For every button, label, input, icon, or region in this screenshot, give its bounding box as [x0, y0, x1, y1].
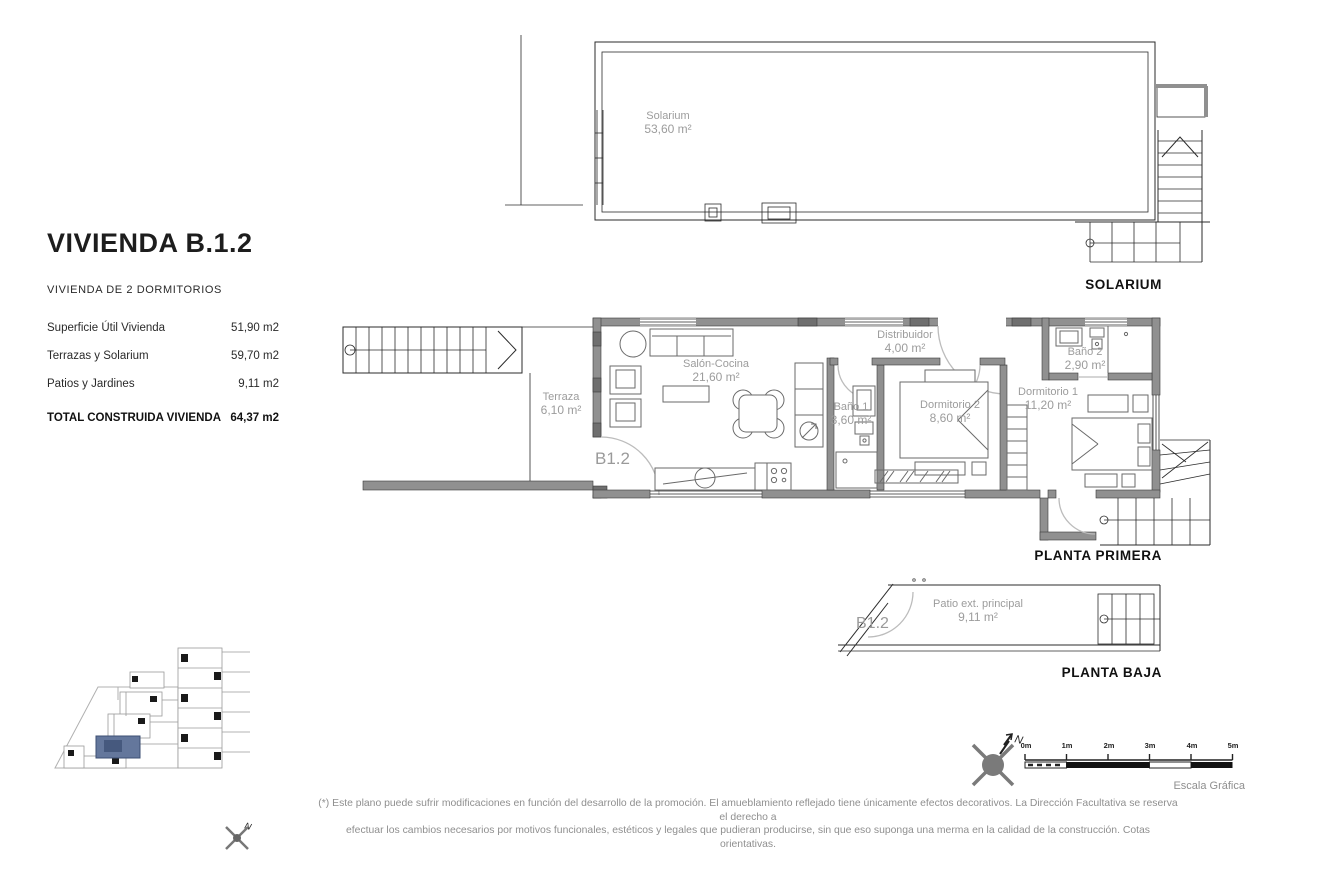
area-total-label: TOTAL CONSTRUIDA VIVIENDA	[47, 412, 221, 424]
room-label-dormitorio1: Dormitorio 1 11,20 m²	[1018, 386, 1078, 412]
area-row-value: 9,11 m2	[238, 378, 279, 390]
info-panel: VIVIENDA B.1.2 VIVIENDA DE 2 DORMITORIOS…	[47, 228, 279, 440]
shower	[836, 452, 877, 488]
room-label-patio: Patio ext. principal 9,11 m²	[933, 598, 1023, 624]
room-area: 8,60 m²	[920, 412, 980, 425]
armchair	[610, 399, 641, 427]
room-area: 53,60 m²	[644, 123, 691, 136]
dining-table	[733, 390, 784, 438]
sofa	[650, 329, 733, 356]
area-row-value: 51,90 m2	[231, 322, 279, 334]
room-area: 6,10 m²	[541, 404, 582, 417]
area-row: Patios y Jardines 9,11 m2	[47, 378, 279, 390]
area-row-label: Patios y Jardines	[47, 378, 135, 390]
window	[870, 491, 965, 497]
coffee-table	[663, 386, 709, 402]
floor-plan-sheet: VIVIENDA B.1.2 VIVIENDA DE 2 DORMITORIOS…	[0, 0, 1330, 873]
window	[1085, 318, 1127, 326]
solarium-room-label: Solarium 53,60 m²	[644, 110, 691, 136]
area-row-label: Terrazas y Solarium	[47, 350, 149, 362]
window	[650, 491, 762, 497]
pillow	[1138, 447, 1150, 466]
room-area: 2,90 m²	[1065, 359, 1106, 372]
closet	[1007, 405, 1027, 490]
site-key-plan: N	[45, 640, 275, 865]
disclaimer-line1: (*) Este plano puede sufrir modificacion…	[318, 797, 1178, 824]
solarium-stairs	[1075, 86, 1210, 262]
solarium-neighbor-lines	[505, 35, 583, 205]
dresser	[1088, 395, 1128, 412]
scale-tick: 2m	[1098, 741, 1120, 750]
room-label-bano2: Baño 2 2,90 m²	[1065, 346, 1106, 372]
bedroom1-furniture	[1072, 395, 1152, 487]
room-area: 4,00 m²	[877, 342, 933, 355]
toilet	[1090, 328, 1104, 337]
pillow	[925, 370, 975, 382]
patio-stairs	[1098, 594, 1160, 644]
round-table	[620, 331, 646, 357]
site-north-arrow-icon: N	[226, 820, 253, 849]
planta-primera-caption: PLANTA PRIMERA	[1000, 548, 1162, 563]
door-arc	[1059, 498, 1095, 534]
scale-tick: 5m	[1222, 741, 1244, 750]
scale-bar: 0m 1m 2m 3m 4m 5m	[1022, 741, 1242, 781]
room-label-terraza: Terraza 6,10 m²	[541, 391, 582, 417]
area-row: Terrazas y Solarium 59,70 m2	[47, 350, 279, 362]
page-title: VIVIENDA B.1.2	[47, 228, 279, 259]
pillow	[1138, 424, 1150, 443]
entry-stairs	[343, 327, 593, 373]
room-area: 11,20 m²	[1018, 399, 1078, 412]
room-label-bano1: Baño 1 3,60 m²	[831, 401, 872, 427]
kitchen-counter	[795, 363, 823, 447]
window	[845, 318, 903, 326]
area-row-value: 59,70 m2	[231, 350, 279, 362]
window	[640, 318, 696, 326]
scale-tick: 1m	[1056, 741, 1078, 750]
room-area: 21,60 m²	[683, 371, 749, 384]
window	[1153, 395, 1159, 450]
area-row-label: Superficie Útil Vivienda	[47, 322, 165, 334]
living-room-furniture	[610, 329, 823, 490]
stove	[755, 463, 791, 490]
unit-label-planta-primera: B1.2	[595, 449, 630, 469]
north-label: N	[243, 820, 253, 832]
solarium-plan-drawing	[500, 25, 1230, 275]
solarium-caption: SOLARIUM	[1040, 277, 1162, 292]
scale-tick: 0m	[1015, 741, 1037, 750]
disclaimer-line2: efectuar los cambios necesarios por moti…	[318, 824, 1178, 851]
room-area: 3,60 m²	[831, 414, 872, 427]
room-area: 9,11 m²	[933, 611, 1023, 624]
site-highlighted-unit-core	[104, 740, 122, 752]
area-total-value: 64,37 m2	[230, 412, 279, 424]
room-label-dormitorio2: Dormitorio 2 8,60 m²	[920, 399, 980, 425]
scale-caption: Escala Gráfica	[1140, 780, 1245, 792]
scale-tick: 3m	[1139, 741, 1161, 750]
unit-label-planta-baja: B1.2	[856, 615, 889, 633]
site-units-right	[178, 648, 250, 768]
planta-baja-caption: PLANTA BAJA	[1022, 665, 1162, 680]
scale-bar-graphic	[1022, 750, 1242, 772]
room-label-distribuidor: Distribuidor 4,00 m²	[877, 329, 933, 355]
disclaimer: (*) Este plano puede sufrir modificacion…	[318, 797, 1178, 851]
room-label-salon-cocina: Salón-Cocina 21,60 m²	[683, 358, 749, 384]
kitchen-island	[655, 468, 755, 490]
scale-tick: 4m	[1181, 741, 1203, 750]
area-row: Superficie Útil Vivienda 51,90 m2	[47, 322, 279, 334]
armchair	[610, 366, 641, 394]
area-total-row: TOTAL CONSTRUIDA VIVIENDA 64,37 m2	[47, 412, 279, 424]
area-table: Superficie Útil Vivienda 51,90 m2 Terraz…	[47, 322, 279, 424]
subtitle: VIVIENDA DE 2 DORMITORIOS	[47, 284, 279, 296]
